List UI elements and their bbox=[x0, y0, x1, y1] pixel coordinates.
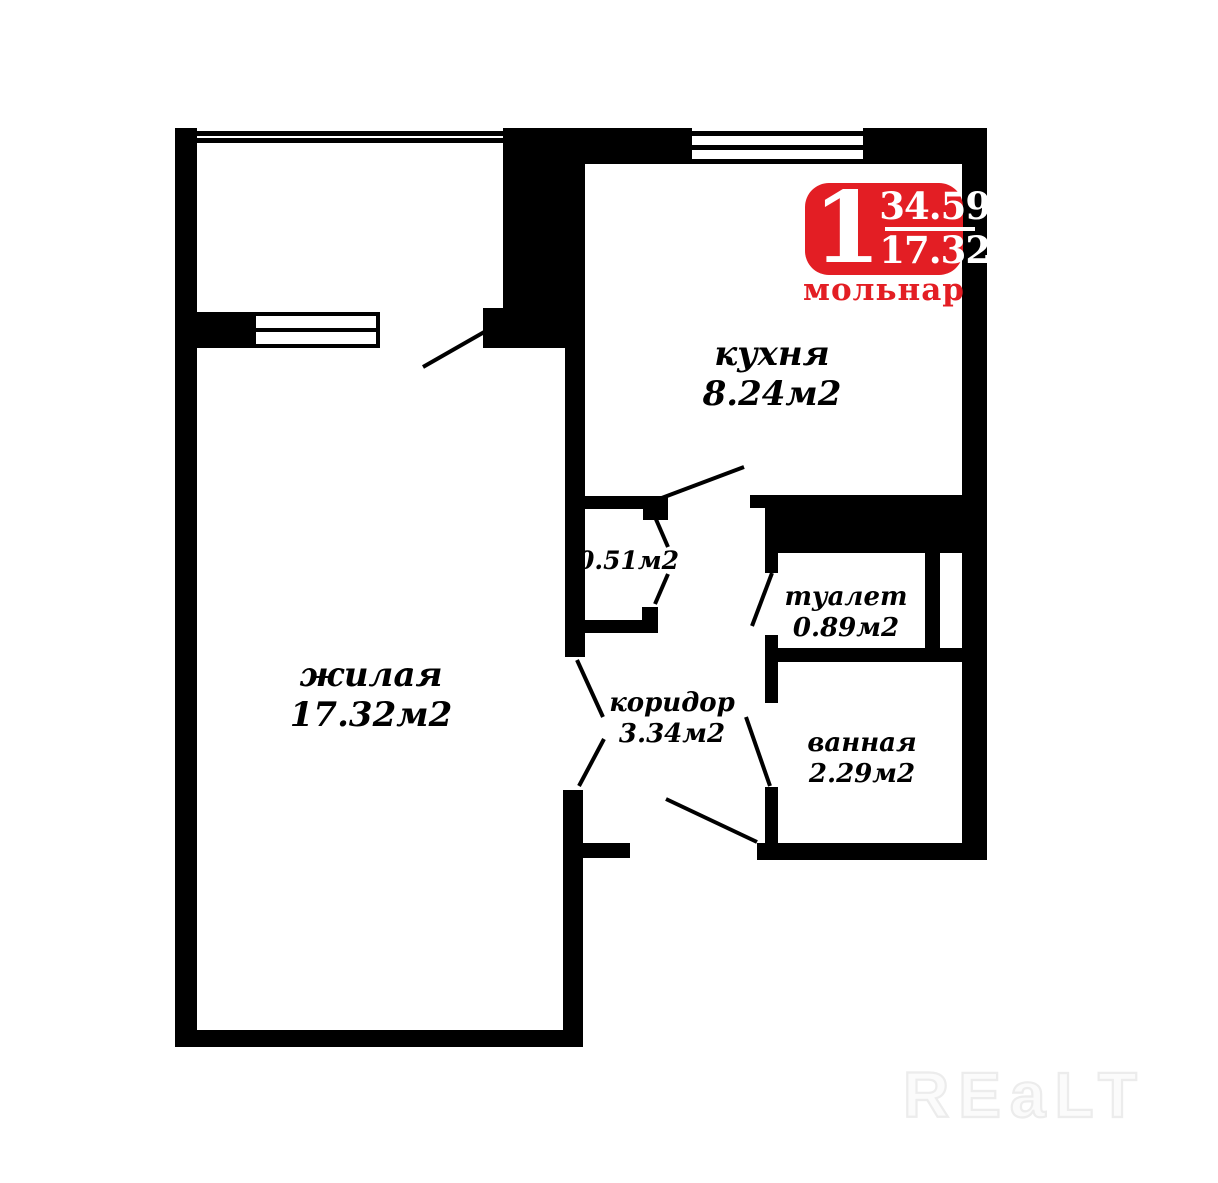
closet-door-swing-upper bbox=[655, 517, 668, 547]
toilet-door-swing bbox=[752, 573, 772, 626]
rooms-count: 1 bbox=[813, 190, 877, 268]
living-door-swing-upper bbox=[577, 660, 603, 717]
bathroom-area: 2.29м2 bbox=[807, 759, 916, 790]
kitchen-label: кухня 8.24м2 bbox=[703, 334, 842, 414]
total-area: 34.59 bbox=[879, 188, 981, 225]
corridor-area: 3.34м2 bbox=[609, 719, 735, 750]
entrance-door-swing bbox=[666, 799, 757, 842]
closet-area: 0.51м2 bbox=[577, 546, 679, 576]
bathroom-name: ванная bbox=[807, 728, 916, 759]
toilet-area: 0.89м2 bbox=[785, 613, 908, 644]
toilet-label: туалет 0.89м2 bbox=[785, 582, 908, 643]
closet-door-swing-lower bbox=[655, 574, 668, 604]
corridor-label: коридор 3.34м2 bbox=[609, 688, 735, 749]
door-swing-lines bbox=[0, 0, 1218, 1183]
floor-plan: кухня 8.24м2 жилая 17.32м2 0.51м2 коридо… bbox=[0, 0, 1218, 1183]
corridor-name: коридор bbox=[609, 688, 735, 719]
brand-label: мольнар bbox=[803, 272, 965, 308]
area-fraction: 34.59 17.32 bbox=[879, 188, 981, 269]
living-label: жилая 17.32м2 bbox=[290, 655, 452, 735]
balcony-door-swing bbox=[423, 331, 486, 367]
bathroom-label: ванная 2.29м2 bbox=[807, 728, 916, 789]
kitchen-area: 8.24м2 bbox=[703, 374, 842, 414]
living-area: 17.32м2 bbox=[290, 695, 452, 735]
kitchen-name: кухня bbox=[703, 334, 842, 374]
living-area: 17.32 bbox=[879, 232, 981, 269]
realt-watermark: REaLT bbox=[903, 1058, 1146, 1132]
bathroom-door-swing bbox=[746, 717, 770, 786]
living-door-swing-lower bbox=[579, 739, 604, 786]
closet-label: 0.51м2 bbox=[577, 546, 679, 576]
area-badge: 1 34.59 17.32 bbox=[805, 183, 963, 275]
living-name: жилая bbox=[290, 655, 452, 695]
kitchen-door-swing bbox=[659, 467, 744, 499]
toilet-name: туалет bbox=[785, 582, 908, 613]
